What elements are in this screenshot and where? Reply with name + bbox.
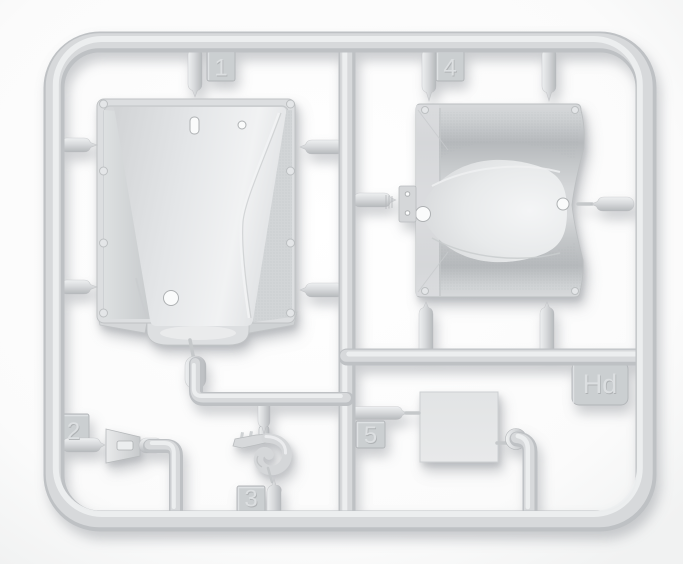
gate-plate-left (350, 407, 407, 420)
tab-1-label: 1 (214, 55, 227, 82)
runner-horizontal-right (346, 354, 646, 357)
tab-4-label: 4 (443, 55, 456, 82)
gate-part4-bottom-right (540, 302, 554, 352)
tab-5-label: 5 (364, 422, 377, 449)
gate-part4-bottom-left (419, 302, 433, 352)
runner-vertical-center (345, 41, 347, 521)
part-4-canvas-roof (416, 104, 585, 297)
gate-part1-right-top (300, 140, 344, 154)
part-5-flat-plate (420, 392, 498, 462)
part-1-canvas-cover-panel (97, 99, 297, 345)
gate-part1-right-bottom (300, 283, 344, 297)
tab-2-label: 2 (67, 418, 80, 445)
sprue-scene: 1 1 4 4 2 2 3 3 5 5 Hd Hd (0, 0, 683, 564)
tab-3-label: 3 (244, 486, 257, 513)
sprue-code-label: Hd (583, 369, 618, 399)
gate-part4-left (353, 193, 396, 207)
part-4-left-bracket (399, 186, 416, 222)
sprue-photo: 1 1 4 4 2 2 3 3 5 5 Hd Hd (0, 0, 683, 564)
